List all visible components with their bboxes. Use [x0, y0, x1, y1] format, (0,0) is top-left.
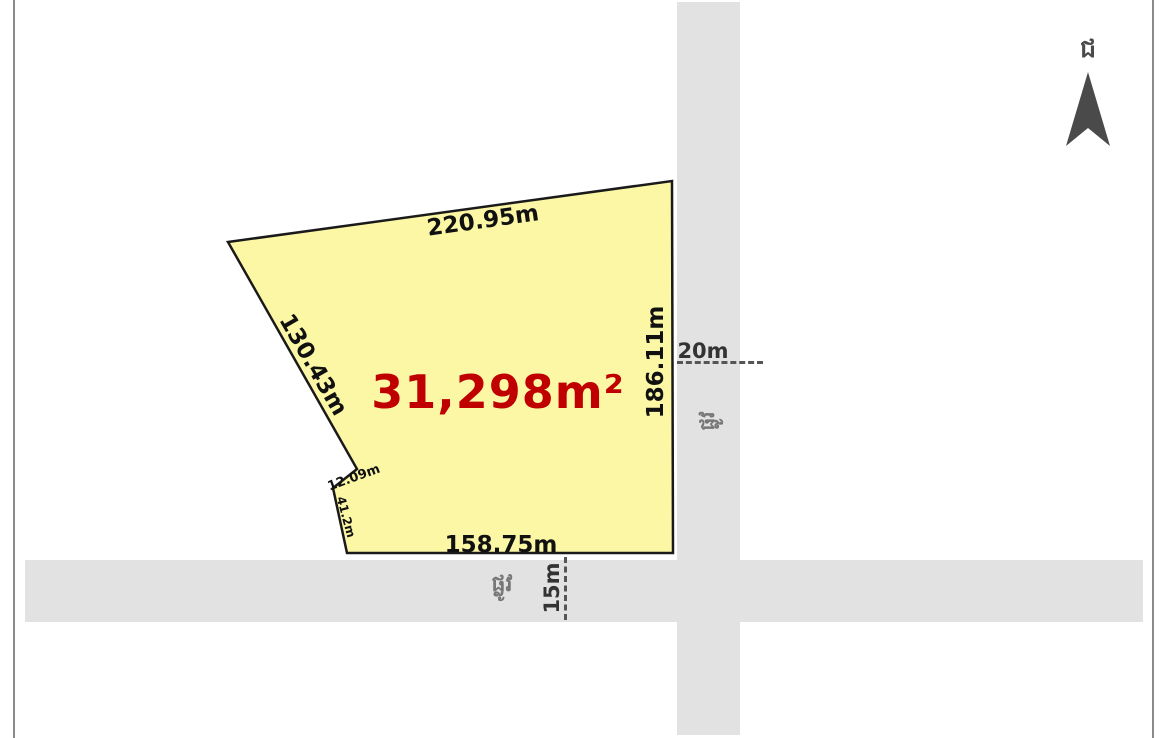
parcel-area-label: 31,298m² — [371, 365, 625, 419]
vertical-road-width-label: 20m — [677, 339, 728, 363]
north-arrow-shape — [1066, 72, 1110, 146]
plot-map-canvas: 220.95m 130.43m 186.11m 158.75m 12.09m 4… — [0, 0, 1170, 738]
horizontal-road-width-label: 15m — [540, 562, 564, 613]
horizontal-road-name-label: ផ្លូវ — [492, 570, 513, 602]
vertical-road-name-label: ផ្លូវ — [694, 411, 724, 430]
edge-length-right: 186.11m — [643, 306, 669, 419]
horizontal-road-width-dashed-line — [564, 557, 567, 620]
north-arrow-icon — [1066, 72, 1110, 146]
north-label: ជ — [1080, 34, 1096, 64]
edge-length-bottom: 158.75m — [445, 532, 558, 558]
north-compass: ជ — [1060, 34, 1116, 146]
